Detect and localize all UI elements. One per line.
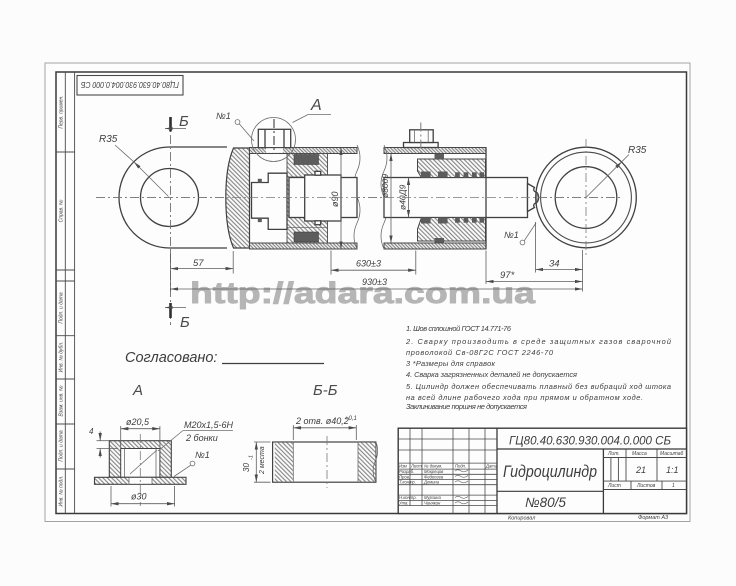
svg-text:4. Сварка загрязненных деталей: 4. Сварка загрязненных деталей не допуск… xyxy=(406,370,577,379)
svg-text:Мурзина: Мурзина xyxy=(424,495,441,500)
svg-text:Справ. №: Справ. № xyxy=(59,199,65,222)
svg-text:930±3: 930±3 xyxy=(362,277,387,287)
svg-text:Б: Б xyxy=(180,314,190,331)
svg-text:2 отв. ø40,2: 2 отв. ø40,2 xyxy=(295,416,349,426)
svg-text:Подп. и дата: Подп. и дата xyxy=(59,292,65,324)
svg-text:Изм: Изм xyxy=(399,464,407,469)
svg-text:1:1: 1:1 xyxy=(666,465,679,475)
svg-text:Взам. инв. №: Взам. инв. № xyxy=(59,385,65,417)
svg-text:Инв. № подл.: Инв. № подл. xyxy=(59,475,65,506)
svg-text:1. Шов сплошной ГОСТ 14.771-7: 1. Шов сплошной ГОСТ 14.771-76 xyxy=(406,324,512,333)
svg-text:630±3: 630±3 xyxy=(356,259,381,269)
svg-text:А: А xyxy=(132,382,143,399)
svg-text:Заклинивание поршня не допуска: Заклинивание поршня не допускается xyxy=(406,402,527,411)
svg-text:ø90: ø90 xyxy=(330,191,340,207)
svg-text:ø30: ø30 xyxy=(131,492,147,502)
svg-text:1: 1 xyxy=(672,483,675,489)
svg-text:Лист: Лист xyxy=(410,464,422,469)
svg-text:№1: №1 xyxy=(216,111,231,121)
svg-text:97*: 97* xyxy=(500,270,515,281)
svg-text:Копировал: Копировал xyxy=(508,516,535,522)
svg-text:Лист: Лист xyxy=(607,483,621,489)
svg-text:-1: -1 xyxy=(249,455,255,460)
svg-text:Лит.: Лит. xyxy=(607,451,620,457)
svg-text:Б-Б: Б-Б xyxy=(313,382,338,399)
svg-text:Формат А3: Формат А3 xyxy=(638,515,669,521)
svg-text:проволокой Св-08Г2С ГОСТ 224: проволокой Св-08Г2С ГОСТ 2246-70 xyxy=(406,348,554,357)
svg-text:ГЦ80.40.630.930.004.0.000 СБ: ГЦ80.40.630.930.004.0.000 СБ xyxy=(509,434,671,448)
svg-text:Масштаб: Масштаб xyxy=(660,451,684,457)
svg-text:2. Сварку производить в сре: 2. Сварку производить в среде защитных г… xyxy=(405,337,671,346)
svg-text:Б: Б xyxy=(179,113,189,130)
svg-text:Мокрецов: Мокрецов xyxy=(424,469,444,474)
svg-text:Утв.: Утв. xyxy=(399,501,409,506)
svg-text:Дата: Дата xyxy=(485,464,498,469)
svg-text:2 бонки: 2 бонки xyxy=(185,433,218,443)
svg-text:Т.контр.: Т.контр. xyxy=(399,480,416,485)
svg-text:М20х1,5-6Н: М20х1,5-6Н xyxy=(184,420,234,430)
svg-text:57: 57 xyxy=(193,258,204,269)
svg-text:Н.контр.: Н.контр. xyxy=(399,495,417,500)
svg-text:30: 30 xyxy=(242,463,251,472)
svg-text:Чинякин: Чинякин xyxy=(424,501,441,506)
svg-text:Листов: Листов xyxy=(636,483,656,489)
svg-text:Подп. и дата: Подп. и дата xyxy=(59,430,65,462)
svg-text:Масса: Масса xyxy=(632,451,647,457)
svg-text:№ докум.: № докум. xyxy=(424,464,442,469)
svg-text:34: 34 xyxy=(549,259,560,270)
svg-text:Демина: Демина xyxy=(423,480,440,485)
svg-text:Разраб.: Разраб. xyxy=(399,469,414,474)
svg-text:на всей длине рабочего ход: на всей длине рабочего хода при прямом и… xyxy=(406,393,643,402)
svg-text:2 места: 2 места xyxy=(259,446,266,475)
svg-text:ø80д9: ø80д9 xyxy=(380,174,390,198)
svg-text:Подп.: Подп. xyxy=(455,464,466,469)
svg-text:R35: R35 xyxy=(99,134,118,145)
svg-text:+0,1: +0,1 xyxy=(345,416,357,422)
svg-text:3 *Размеры для справок: 3 *Размеры для справок xyxy=(406,359,496,368)
svg-text:Инв. № дубл.: Инв. № дубл. xyxy=(59,342,65,373)
svg-text:4: 4 xyxy=(89,427,94,436)
svg-text:№1: №1 xyxy=(504,230,519,240)
svg-text:ГЦ80.40.630.930.004.0.000 СБ: ГЦ80.40.630.930.004.0.000 СБ xyxy=(81,80,179,89)
svg-text:Согласовано:: Согласовано: xyxy=(125,350,217,366)
svg-text:Гидроцилиндр: Гидроцилиндр xyxy=(503,462,597,481)
svg-text:21: 21 xyxy=(635,465,646,475)
svg-text:А: А xyxy=(310,97,322,114)
svg-text:ø20,5: ø20,5 xyxy=(126,417,150,427)
svg-text:№1: №1 xyxy=(195,450,210,460)
svg-text:Перв. примен.: Перв. примен. xyxy=(59,95,65,128)
svg-text:№80/5: №80/5 xyxy=(525,495,566,510)
svg-text:5. Цилиндр должен обеспечива: 5. Цилиндр должен обеспечивать плавный б… xyxy=(406,382,671,391)
svg-text:R35: R35 xyxy=(628,145,647,156)
